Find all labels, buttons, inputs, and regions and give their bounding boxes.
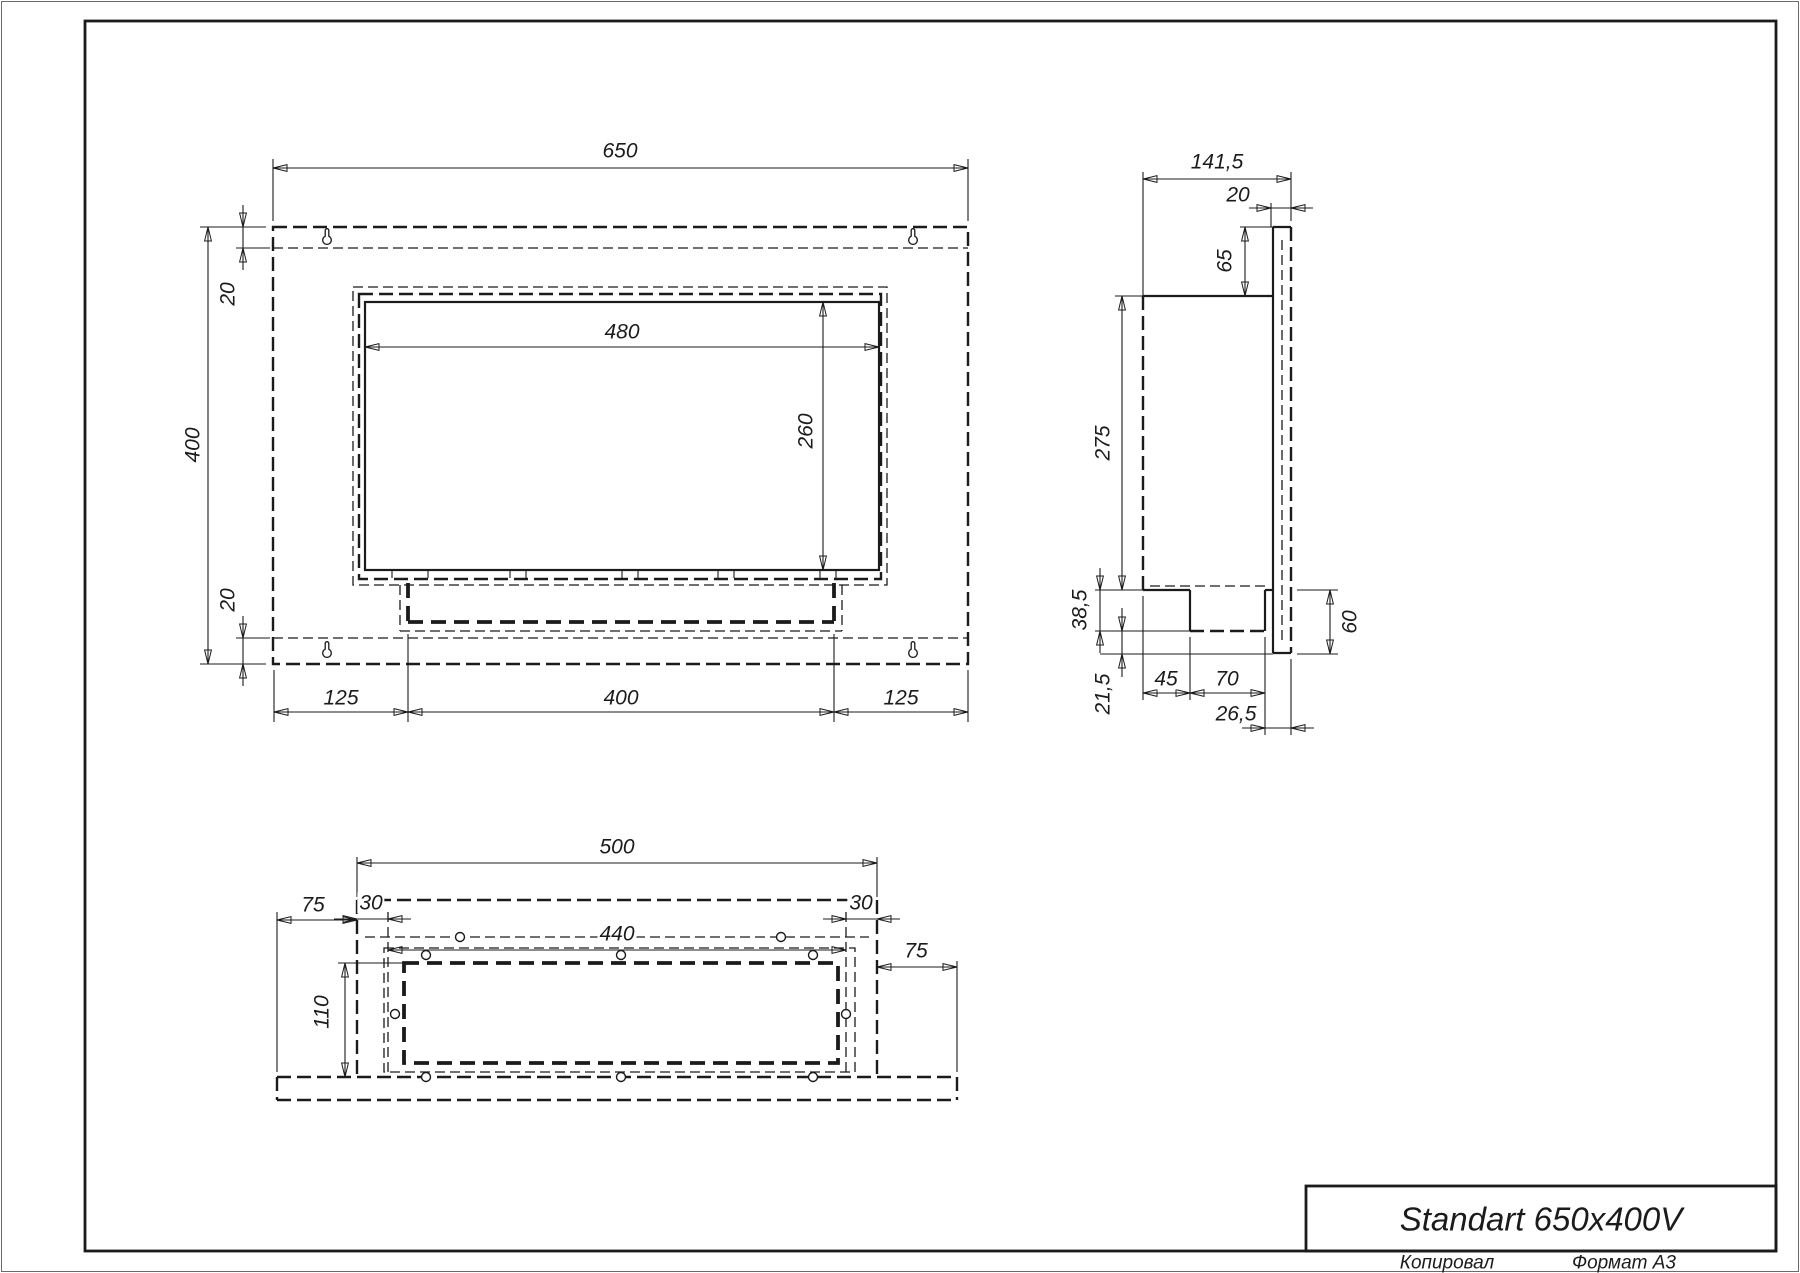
drawing-canvas	[0, 0, 1800, 1273]
dim-front-flange-bottom: 20	[218, 586, 239, 613]
mounting-hole	[809, 1073, 818, 1082]
dim-side-outlet-offset: 26,5	[1214, 704, 1259, 725]
mounting-hole	[617, 1073, 626, 1082]
dim-bottom-hole-inset-left: 30	[357, 893, 384, 914]
dim-bottom-flange-left: 75	[299, 895, 326, 916]
title-block-name: Standart 650x400V	[1398, 1203, 1685, 1236]
sheet-frame	[85, 21, 1776, 1251]
dim-front-height: 400	[183, 425, 204, 464]
mounting-holes	[391, 933, 851, 1082]
keyhole-icon	[323, 229, 332, 245]
drawing-sheet: 650 400 20 20 480 260 125 400 125 141,5 …	[0, 0, 1800, 1273]
front-view	[200, 159, 968, 722]
dim-front-foot-center: 400	[601, 688, 640, 709]
keyhole-icon	[323, 642, 332, 658]
burner-tray-side	[1150, 586, 1265, 631]
keyhole-icon	[909, 642, 918, 658]
dim-side-body-height: 275	[1093, 423, 1114, 462]
mounting-hole	[777, 933, 786, 942]
dim-side-front-plate: 20	[1224, 185, 1251, 206]
mounting-hole	[842, 1010, 851, 1019]
dim-bottom-cavity-depth: 110	[312, 993, 333, 1030]
footer-format-label: Формат А3	[1570, 1254, 1678, 1273]
dim-side-tray-depth: 70	[1213, 669, 1240, 690]
dim-bottom-hole-inset-right: 30	[847, 893, 874, 914]
dim-front-foot-right: 125	[881, 688, 920, 709]
mounting-hole	[422, 1073, 431, 1082]
dim-front-opening-width: 480	[602, 322, 641, 343]
dim-side-top-inset: 65	[1215, 247, 1236, 274]
mounting-hole	[422, 951, 431, 960]
footer-copied-label: Копировал	[1398, 1254, 1497, 1273]
dim-side-bottom-total: 60	[1340, 608, 1361, 635]
mounting-hole	[391, 1010, 400, 1019]
dim-side-depth: 141,5	[1189, 152, 1246, 173]
dim-front-flange-top: 20	[218, 280, 239, 307]
keyhole-icon	[909, 229, 918, 245]
dim-bottom-body-width: 500	[597, 837, 636, 858]
dim-side-tray-offset: 45	[1152, 669, 1179, 690]
mounting-hole	[809, 951, 818, 960]
dim-side-tray-height: 38,5	[1070, 588, 1091, 633]
burner-tray-front	[400, 583, 842, 631]
dim-front-foot-left: 125	[321, 688, 360, 709]
dim-bottom-flange-right: 75	[902, 941, 929, 962]
dim-side-bottom-inset: 21,5	[1093, 672, 1114, 717]
opening-tabs	[392, 570, 836, 578]
mounting-hole	[456, 933, 465, 942]
dim-front-opening-height: 260	[796, 411, 817, 450]
dim-bottom-hole-span: 440	[597, 924, 636, 945]
dim-front-width: 650	[600, 141, 639, 162]
mounting-hole	[617, 951, 626, 960]
